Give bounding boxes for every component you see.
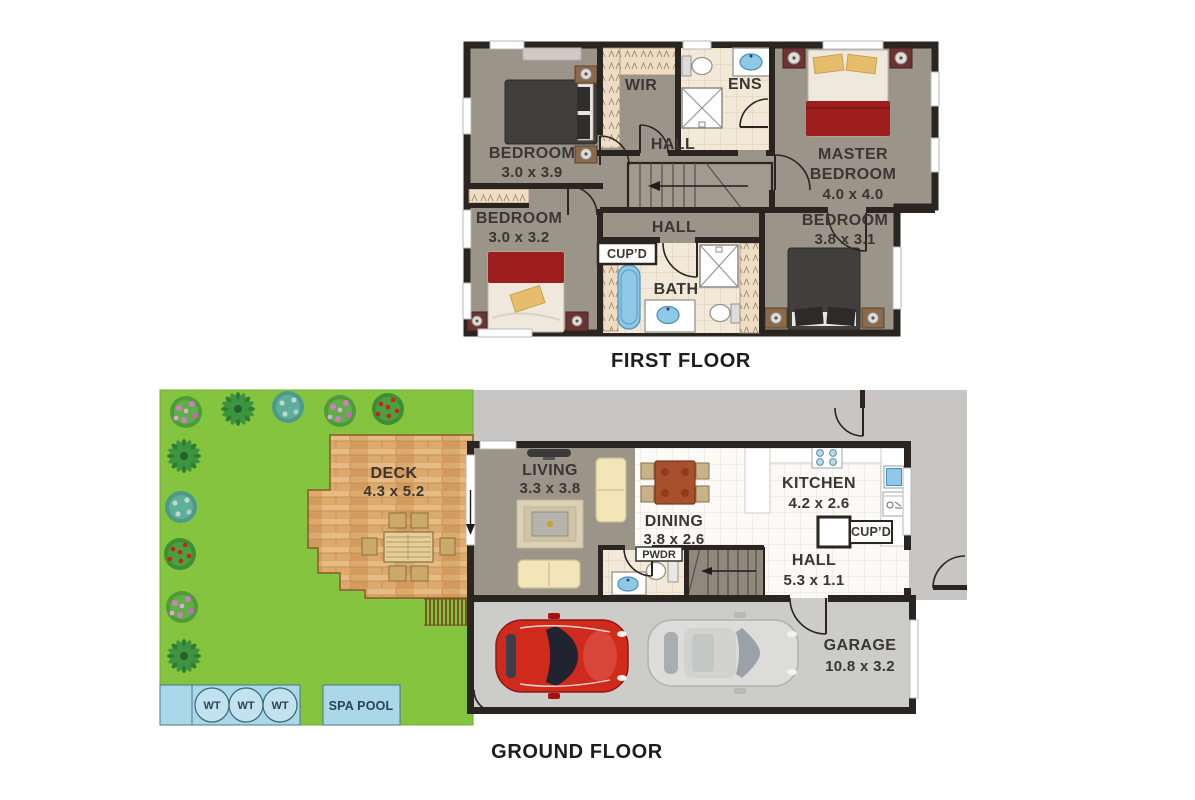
nightstand <box>890 48 912 68</box>
room-label-living: LIVING <box>522 462 578 479</box>
room-label-master-1: MASTER <box>818 146 888 163</box>
spa-pool-label: SPA POOL <box>329 699 394 713</box>
room-label-ens: ENS <box>728 76 762 93</box>
bed-double-dark <box>505 80 597 144</box>
first-floor-title: FIRST FLOOR <box>611 350 751 372</box>
vanity-sink-icon <box>733 48 770 76</box>
nightstand <box>765 308 787 328</box>
bed-master <box>806 50 890 136</box>
trellis-fence <box>424 598 468 626</box>
spa-pool: SPA POOL <box>323 685 400 725</box>
stairs-ground-floor <box>688 548 764 596</box>
room-label-bedroom1: BEDROOM <box>489 145 575 162</box>
room-label-bedroom2: BEDROOM <box>476 210 562 227</box>
shrub-icon <box>324 395 356 427</box>
room-dims-master: 4.0 x 4.0 <box>822 186 883 203</box>
shrub-icon <box>164 538 196 570</box>
first-floor-plan: BEDROOM 3.0 x 3.9 WIR ENS HALL MASTER BE… <box>463 41 939 372</box>
water-tanks: WT WT WT <box>192 685 300 725</box>
shower-icon <box>682 88 722 128</box>
room-dims-bedroom3: 3.8 x 3.1 <box>814 231 875 248</box>
bathtub-icon <box>618 265 640 329</box>
room-dims-dining: 3.8 x 2.6 <box>643 531 704 548</box>
room-label-bedroom3: BEDROOM <box>802 212 888 229</box>
room-label-garage: GARAGE <box>824 637 897 654</box>
sofa <box>518 560 580 588</box>
water-tank-label: WT <box>203 700 220 712</box>
toilet-icon <box>710 304 740 323</box>
nightstand <box>566 312 588 331</box>
room-dims-bedroom1: 3.0 x 3.9 <box>501 164 562 181</box>
stove-icon <box>812 446 842 468</box>
vanity-sink-icon <box>645 300 695 332</box>
room-label-deck: DECK <box>371 465 418 482</box>
water-tank-label: WT <box>271 700 288 712</box>
room-dims-bedroom2: 3.0 x 3.2 <box>488 229 549 246</box>
shrub-icon <box>272 391 304 423</box>
room-label-cupd-ground: CUP’D <box>851 525 891 539</box>
ground-floor-plan: WT WT WT SPA POOL <box>160 390 967 763</box>
room-dims-garage: 10.8 x 3.2 <box>825 658 895 675</box>
nightstand <box>783 48 805 68</box>
stairs-first-floor <box>628 163 772 209</box>
sliding-door <box>466 455 475 545</box>
shower-icon <box>700 245 738 287</box>
room-label-cupd: CUP’D <box>607 247 647 261</box>
shrub-icon <box>166 591 198 623</box>
room-label-hall-upper: HALL <box>651 136 695 153</box>
room-label-wir: WIR <box>625 77 657 94</box>
sink-icon <box>612 572 646 595</box>
room-label-master-2: BEDROOM <box>810 166 896 183</box>
car-red <box>496 613 628 699</box>
shrub-icon <box>165 491 197 523</box>
shrub-icon <box>170 396 202 428</box>
nightstand <box>575 66 597 83</box>
window-seat <box>523 48 581 60</box>
car-silver <box>648 612 798 694</box>
floorplan-canvas: BEDROOM 3.0 x 3.9 WIR ENS HALL MASTER BE… <box>0 0 1195 800</box>
water-tank-label: WT <box>237 700 254 712</box>
room-label-hall-lower: HALL <box>652 219 696 236</box>
pwdr-label-group: PWDR <box>636 547 682 561</box>
nightstand <box>862 308 884 328</box>
floorplan-page: BEDROOM 3.0 x 3.9 WIR ENS HALL MASTER BE… <box>0 0 1195 800</box>
shrub-icon <box>372 393 404 425</box>
room-dims-living: 3.3 x 3.8 <box>519 480 580 497</box>
nightstand <box>575 146 597 163</box>
toilet-icon <box>682 56 712 76</box>
room-dims-hall-ground: 5.3 x 1.1 <box>783 572 844 589</box>
sofa <box>596 458 626 522</box>
room-label-pwdr: PWDR <box>642 549 676 561</box>
room-dims-deck: 4.3 x 5.2 <box>363 483 424 500</box>
rug-and-coffee-table <box>517 500 583 548</box>
bed-red-blanket <box>488 252 564 332</box>
bed-double-dark <box>788 248 860 330</box>
room-label-bath: BATH <box>654 281 699 298</box>
room-dims-kitchen: 4.2 x 2.6 <box>788 495 849 512</box>
ground-floor-title: GROUND FLOOR <box>491 741 663 763</box>
room-label-kitchen: KITCHEN <box>782 475 856 492</box>
dishwasher-icon <box>883 492 905 516</box>
sink-icon <box>884 466 904 488</box>
room-label-hall-ground: HALL <box>792 552 836 569</box>
room-label-dining: DINING <box>645 513 703 530</box>
water-feature-box <box>160 685 192 725</box>
